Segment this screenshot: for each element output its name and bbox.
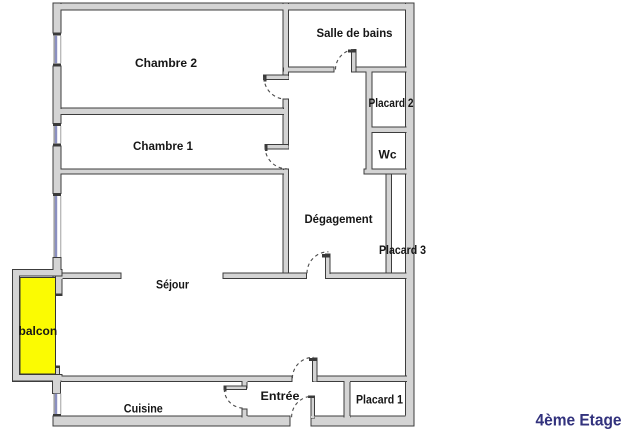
svg-text:4ème Etage: 4ème Etage [536,411,622,429]
svg-text:balcon: balcon [19,324,58,338]
svg-text:Dégagement: Dégagement [305,212,373,226]
svg-text:Chambre 1: Chambre 1 [133,139,193,153]
svg-text:Placard 2: Placard 2 [369,96,414,110]
svg-text:Chambre 2: Chambre 2 [135,56,197,70]
svg-text:Salle de bains: Salle de bains [317,26,393,40]
svg-text:Séjour: Séjour [156,278,189,292]
svg-text:Entrée: Entrée [261,389,300,403]
svg-text:Cuisine: Cuisine [124,402,163,416]
svg-text:Placard 1: Placard 1 [356,392,403,406]
svg-text:Wc: Wc [379,147,397,161]
svg-text:Placard 3: Placard 3 [379,243,426,257]
